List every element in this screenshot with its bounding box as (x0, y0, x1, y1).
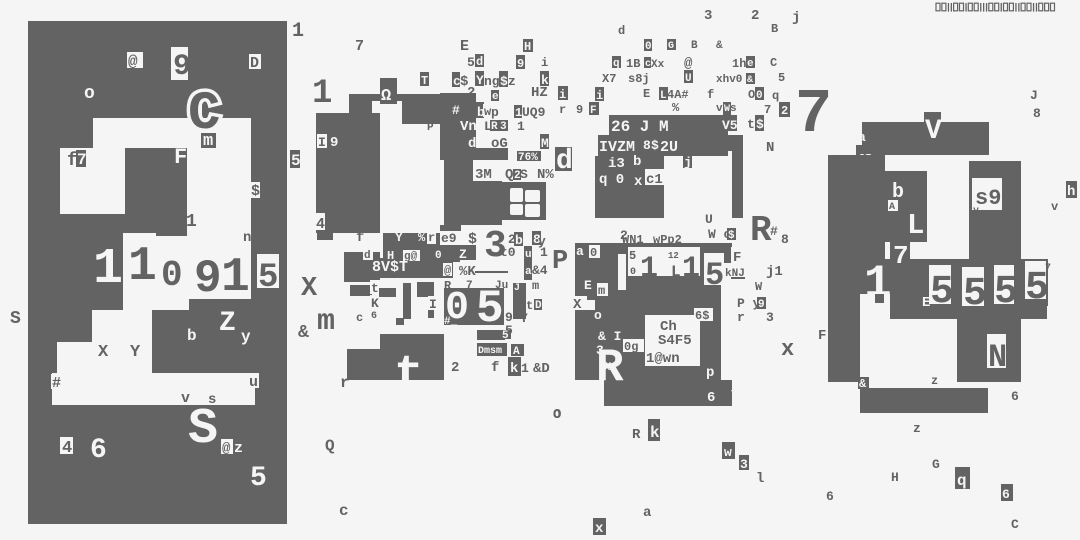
svg-text:$: $ (251, 183, 260, 200)
svg-text:5: 5 (930, 270, 954, 315)
svg-text:9: 9 (758, 299, 765, 311)
svg-text:5: 5 (629, 249, 636, 263)
svg-text:S: S (520, 167, 528, 182)
svg-text:J: J (514, 283, 520, 294)
svg-text:C: C (1011, 517, 1019, 532)
svg-text:Y: Y (731, 388, 740, 404)
svg-text:I: I (318, 135, 326, 150)
svg-text:b: b (515, 233, 523, 248)
svg-text:@: @ (684, 56, 693, 72)
svg-text:S: S (10, 309, 21, 329)
svg-text:y: y (241, 328, 251, 346)
svg-text:0: 0 (590, 246, 597, 260)
svg-text:c: c (339, 502, 349, 520)
svg-text:6: 6 (1002, 487, 1010, 502)
svg-text:&D: &D (533, 361, 550, 377)
svg-text:S4F5: S4F5 (658, 333, 692, 349)
svg-text:2: 2 (781, 104, 788, 118)
svg-text:0g: 0g (624, 340, 638, 354)
svg-text:26 J M: 26 J M (611, 118, 669, 136)
svg-text:L: L (671, 263, 681, 281)
svg-text:O: O (553, 407, 561, 422)
svg-text:3M: 3M (475, 167, 492, 183)
svg-text:F: F (174, 145, 187, 170)
svg-text:X: X (573, 297, 582, 313)
svg-text:z: z (234, 440, 243, 457)
svg-text:Y: Y (395, 230, 403, 245)
svg-text:F: F (818, 328, 826, 344)
svg-text:t: t (747, 117, 755, 132)
svg-text:f: f (491, 360, 499, 376)
svg-text:B: B (691, 40, 698, 52)
svg-text:x: x (595, 521, 604, 537)
svg-text:8: 8 (643, 138, 651, 153)
svg-text:#_: #_ (444, 316, 458, 328)
svg-text:1B: 1B (626, 57, 640, 71)
svg-text:z: z (913, 421, 921, 436)
svg-text:&: & (859, 377, 867, 391)
svg-text:R: R (632, 427, 641, 443)
svg-text:3: 3 (740, 457, 748, 472)
svg-text:a: a (576, 244, 584, 259)
svg-text:76%: 76% (518, 152, 538, 164)
svg-text:J: J (1030, 88, 1038, 103)
svg-text:8: 8 (781, 232, 789, 247)
svg-text:i: i (559, 88, 566, 102)
svg-text:A: A (889, 202, 895, 213)
svg-text:&: & (298, 323, 309, 343)
svg-text:M: M (541, 136, 549, 151)
svg-text:4: 4 (492, 180, 500, 196)
svg-text:E: E (460, 38, 469, 55)
svg-text:o: o (594, 308, 602, 323)
svg-text:2: 2 (451, 360, 459, 376)
svg-text:V5: V5 (722, 118, 738, 133)
svg-text:9: 9 (576, 103, 583, 117)
svg-text:2: 2 (751, 8, 759, 24)
svg-text:a: a (525, 266, 532, 278)
svg-text:X: X (98, 343, 109, 362)
svg-text:6: 6 (1011, 389, 1019, 404)
svg-text:q: q (957, 472, 967, 490)
svg-text:S: S (188, 401, 218, 458)
svg-text:$: $ (651, 138, 659, 153)
svg-text:N: N (766, 140, 774, 156)
svg-text:R: R (596, 342, 624, 394)
svg-text:m: m (598, 284, 605, 298)
svg-text:1: 1 (640, 252, 658, 286)
svg-text:u: u (249, 374, 258, 391)
svg-text:F: F (590, 105, 597, 117)
svg-text:e9: e9 (441, 231, 457, 246)
svg-text:c1: c1 (646, 172, 663, 188)
svg-text:3: 3 (500, 121, 507, 133)
svg-text:c: c (356, 311, 363, 325)
svg-text:q: q (613, 58, 620, 70)
svg-text:HZ: HZ (531, 85, 548, 101)
svg-text:Q: Q (505, 167, 513, 183)
svg-text:u: u (525, 249, 532, 261)
svg-text:1: 1 (540, 245, 548, 260)
svg-text:$: $ (728, 230, 735, 242)
svg-text:v: v (716, 103, 723, 115)
svg-text:7: 7 (1045, 263, 1051, 274)
svg-text:7: 7 (893, 241, 909, 271)
svg-text:f: f (356, 230, 364, 246)
svg-text:5: 5 (258, 259, 278, 297)
svg-text:q: q (772, 89, 779, 103)
svg-text:l: l (756, 471, 764, 487)
svg-text:WN1: WN1 (622, 233, 644, 247)
svg-text:5: 5 (291, 152, 301, 170)
svg-text:U: U (685, 73, 692, 85)
svg-text:x: x (634, 174, 643, 190)
svg-text:x: x (781, 337, 794, 362)
svg-text:D: D (535, 300, 542, 312)
svg-text:3: 3 (704, 8, 712, 24)
svg-text:8: 8 (1033, 106, 1041, 121)
svg-text:6: 6 (371, 311, 377, 322)
svg-text:T: T (421, 74, 428, 88)
svg-text:d: d (468, 136, 476, 152)
svg-text:v: v (1051, 200, 1058, 214)
svg-text:&: & (716, 40, 723, 52)
svg-text:0: 0 (435, 250, 442, 262)
svg-text:7: 7 (764, 103, 771, 117)
svg-text:UQ9: UQ9 (522, 105, 546, 120)
svg-text:N%: N% (537, 167, 554, 183)
svg-text:6: 6 (90, 435, 107, 466)
svg-text:W: W (755, 280, 763, 294)
svg-text:G: G (932, 457, 940, 472)
svg-text:5: 5 (963, 272, 987, 317)
svg-text:E: E (584, 278, 592, 293)
svg-text:9: 9 (330, 135, 338, 151)
svg-text:%: % (672, 101, 680, 115)
svg-text:Ω: Ω (381, 87, 391, 106)
svg-text:Ju: Ju (495, 280, 508, 292)
svg-text:Q: Q (325, 437, 335, 455)
svg-text:7: 7 (795, 79, 832, 150)
svg-text:V: V (925, 116, 942, 147)
svg-text:1: 1 (292, 20, 304, 43)
svg-text:f: f (707, 88, 714, 102)
svg-text:H: H (891, 470, 899, 485)
svg-text:L: L (660, 90, 667, 102)
svg-text:0: 0 (630, 267, 636, 278)
svg-text:b: b (187, 327, 197, 345)
svg-text:&4: &4 (532, 263, 548, 278)
svg-text:5: 5 (778, 71, 785, 85)
svg-text:j1: j1 (766, 264, 783, 280)
svg-text:s: s (730, 103, 737, 115)
svg-text:7: 7 (355, 38, 364, 55)
svg-text:q 0: q 0 (599, 172, 624, 188)
svg-text:1: 1 (312, 75, 332, 113)
svg-text:Y: Y (520, 311, 528, 326)
svg-text:0: 0 (756, 90, 763, 102)
svg-text:i: i (541, 56, 548, 70)
svg-text:P: P (552, 247, 568, 277)
svg-text:b: b (633, 154, 641, 170)
svg-text:Z: Z (459, 247, 467, 262)
svg-text:4: 4 (62, 439, 72, 458)
svg-text:5: 5 (467, 55, 475, 70)
svg-text:K: K (371, 296, 379, 311)
svg-text:P: P (427, 122, 434, 134)
svg-text:X7: X7 (602, 72, 616, 86)
svg-text:#: # (770, 224, 778, 239)
svg-text:e: e (747, 58, 754, 70)
svg-text:wPp2: wPp2 (653, 233, 682, 247)
svg-text:d: d (556, 146, 573, 177)
svg-text:e: e (492, 91, 499, 103)
svg-text:X: X (301, 274, 318, 304)
svg-text:IVZM: IVZM (599, 139, 635, 156)
svg-text:o: o (84, 84, 95, 104)
svg-text:m: m (317, 305, 335, 339)
svg-text:5: 5 (502, 330, 509, 342)
svg-text:$: $ (500, 74, 508, 89)
svg-text:5: 5 (705, 257, 724, 294)
svg-text:z: z (508, 74, 516, 89)
svg-text:Z: Z (219, 308, 236, 339)
svg-text:8V$T: 8V$T (372, 259, 408, 276)
svg-text:n: n (243, 230, 251, 246)
svg-text:2U: 2U (660, 139, 678, 156)
svg-text:B: B (771, 22, 778, 36)
svg-text:7: 7 (77, 151, 87, 169)
svg-text:@: @ (222, 441, 231, 457)
svg-text:1: 1 (517, 119, 525, 134)
svg-text:d: d (476, 55, 483, 69)
svg-text:Y: Y (130, 343, 141, 362)
svg-text:1: 1 (221, 251, 250, 305)
svg-text:I: I (429, 297, 437, 312)
svg-text:9: 9 (194, 253, 222, 305)
svg-text:N: N (988, 339, 1007, 376)
svg-text:Y: Y (476, 73, 484, 88)
svg-text:$: $ (756, 117, 764, 132)
svg-text:i3: i3 (608, 156, 625, 172)
svg-text:1: 1 (93, 241, 123, 298)
svg-text:j: j (792, 10, 800, 26)
svg-text:Vn: Vn (460, 119, 477, 135)
svg-text:4: 4 (316, 216, 325, 233)
svg-text:t: t (394, 348, 424, 405)
svg-text:D: D (250, 55, 259, 72)
svg-text:6: 6 (826, 489, 834, 504)
svg-text:k: k (510, 361, 518, 377)
svg-text:5: 5 (250, 463, 267, 494)
svg-text:a: a (643, 505, 652, 521)
svg-text:6: 6 (707, 390, 715, 406)
svg-text:R: R (750, 210, 772, 251)
svg-text:d: d (364, 250, 371, 262)
svg-text:xhv0: xhv0 (716, 74, 742, 86)
svg-text:j: j (684, 155, 692, 170)
svg-text:1: 1 (682, 252, 700, 286)
svg-text:12: 12 (668, 251, 679, 261)
svg-text:s8j: s8j (628, 72, 650, 86)
svg-text:Dmsm: Dmsm (478, 346, 502, 357)
svg-text:a: a (858, 130, 866, 145)
svg-text:Xx: Xx (651, 59, 665, 71)
svg-text:d: d (618, 24, 625, 38)
svg-text:m: m (203, 132, 213, 151)
svg-text:i: i (596, 89, 603, 103)
svg-text:U: U (705, 212, 713, 227)
svg-text:p: p (491, 105, 499, 120)
svg-text:5: 5 (994, 270, 1018, 315)
svg-text:1: 1 (186, 212, 197, 232)
svg-text:R: R (491, 121, 498, 133)
svg-text:k: k (650, 424, 660, 442)
svg-text:1: 1 (521, 361, 529, 376)
svg-text:1@wn: 1@wn (646, 351, 680, 367)
svg-text:h: h (1067, 184, 1075, 200)
svg-text:#: # (452, 103, 460, 118)
svg-text:ng: ng (484, 74, 500, 89)
svg-text:%K: %K (459, 264, 476, 280)
svg-text:0: 0 (161, 255, 183, 296)
svg-text:9: 9 (517, 57, 524, 71)
svg-text:&: & (747, 75, 753, 86)
svg-text:1h: 1h (732, 57, 746, 71)
svg-text:#: # (52, 375, 61, 392)
svg-text:0: 0 (645, 41, 652, 53)
svg-text:z: z (931, 374, 938, 388)
svg-text:%: % (418, 231, 426, 245)
svg-text:C: C (770, 56, 777, 70)
svg-text:E: E (643, 87, 650, 101)
svg-text:4A#: 4A# (667, 88, 689, 102)
svg-text:G: G (668, 41, 674, 52)
svg-text:oG: oG (491, 136, 508, 152)
svg-text:O: O (748, 88, 755, 102)
svg-text:p: p (706, 365, 714, 381)
svg-text:1: 1 (128, 240, 157, 294)
svg-text:H: H (524, 40, 531, 54)
svg-text:E: E (922, 295, 930, 311)
svg-text:r: r (428, 231, 435, 245)
svg-text:3: 3 (766, 310, 774, 325)
svg-text:@: @ (444, 264, 451, 278)
svg-text:t: t (371, 281, 379, 296)
svg-text:t0: t0 (500, 245, 516, 260)
svg-text:r: r (737, 310, 745, 325)
svg-text:6$: 6$ (695, 309, 709, 323)
svg-text:t: t (257, 228, 265, 244)
svg-text:r: r (559, 103, 566, 117)
svg-text:2: 2 (467, 85, 475, 101)
svg-text:L: L (907, 209, 924, 242)
svg-text:y: y (973, 206, 979, 217)
svg-text:@: @ (128, 53, 138, 71)
svg-text:9: 9 (173, 50, 191, 84)
svg-text:w: w (724, 445, 732, 460)
svg-text:A: A (513, 346, 520, 358)
svg-text:m: m (532, 279, 539, 293)
